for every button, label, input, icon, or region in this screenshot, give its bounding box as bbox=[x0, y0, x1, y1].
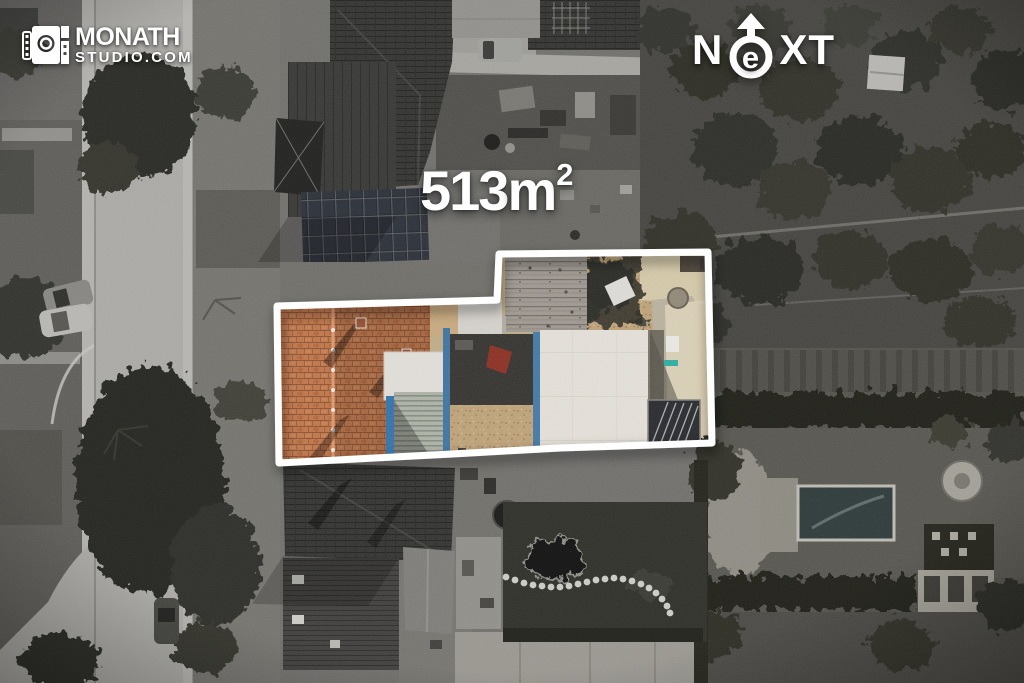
monath-studio-logo: MONATH STUDIO.COM bbox=[22, 24, 193, 66]
vignette bbox=[0, 0, 1024, 683]
studio-logo-name: MONATH bbox=[75, 25, 193, 51]
studio-logo-domain: STUDIO.COM bbox=[75, 50, 193, 65]
next-logo-prefix: N bbox=[692, 31, 723, 70]
area-unit: m bbox=[507, 159, 555, 222]
area-label: 513m2 bbox=[420, 158, 573, 223]
aerial-photo bbox=[0, 0, 1024, 683]
next-logo-circle-letter: e bbox=[742, 40, 760, 75]
next-logo-suffix: XT bbox=[779, 31, 835, 70]
camera-icon bbox=[22, 24, 70, 66]
area-value: 513 bbox=[420, 159, 507, 222]
real-estate-aerial-listing: MONATH STUDIO.COM N e XT 513m2 bbox=[0, 0, 1024, 683]
next-logo: N e XT bbox=[692, 12, 835, 70]
area-superscript: 2 bbox=[556, 157, 573, 192]
north-arrow-icon: e bbox=[725, 12, 777, 82]
